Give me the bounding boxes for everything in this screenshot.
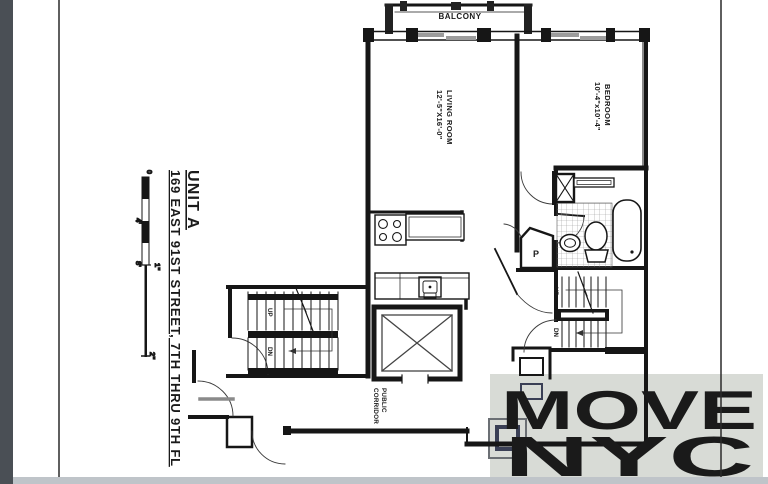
toilet: [585, 222, 607, 250]
stair-right-dn-label: DN: [552, 328, 559, 337]
corridor-label-public: PUBLIC: [380, 388, 387, 413]
corridor-label-corridor: CORRIDOR: [372, 388, 379, 424]
scale-tick-2in: 2": [148, 352, 157, 360]
bedroom-dims: 10'-4"x10'-4": [593, 82, 602, 131]
bath-shelf: [574, 178, 614, 187]
living-room-dims: 12'-5"X16'-0": [435, 90, 444, 140]
scale-tick-4ft: 4': [134, 218, 143, 224]
stair-left-up-label: UP: [266, 308, 273, 317]
scale-tick-1in: 1": [153, 263, 162, 271]
balcony-label: BALCONY: [438, 12, 481, 21]
stove: [375, 215, 406, 245]
left-dark-strip: [0, 0, 13, 484]
elevator: [374, 307, 460, 383]
kitchen-counter: [406, 214, 464, 240]
address-title: 169 EAST 91ST STREET, 7TH THRU 9TH FL: [168, 170, 183, 467]
logo-nyc: NYC: [504, 425, 754, 484]
bottom-gray-strip: [13, 477, 768, 484]
living-room-label: LIVING ROOM: [445, 90, 454, 145]
floor-plan-page: BALCONY LIVING ROOM 12'-5"X16'-0" BEDROO…: [0, 0, 768, 484]
unit-title: UNIT A: [184, 170, 201, 230]
bathtub: [613, 200, 641, 261]
scale-tick-8ft: 8': [134, 261, 143, 267]
scale-tick-0: 0: [145, 170, 154, 174]
pantry-closet: [521, 228, 553, 268]
bath-sink: [560, 235, 580, 252]
floor-plan-drawing: BALCONY LIVING ROOM 12'-5"X16'-0" BEDROO…: [0, 0, 768, 484]
stair-left-dn-label: DN: [266, 347, 273, 356]
move-nyc-logo: MOVE NYC: [501, 379, 757, 484]
bedroom-label: BEDROOM: [603, 84, 612, 126]
pantry-label: P: [533, 249, 539, 259]
stair-right-up-label: UP: [552, 287, 559, 296]
